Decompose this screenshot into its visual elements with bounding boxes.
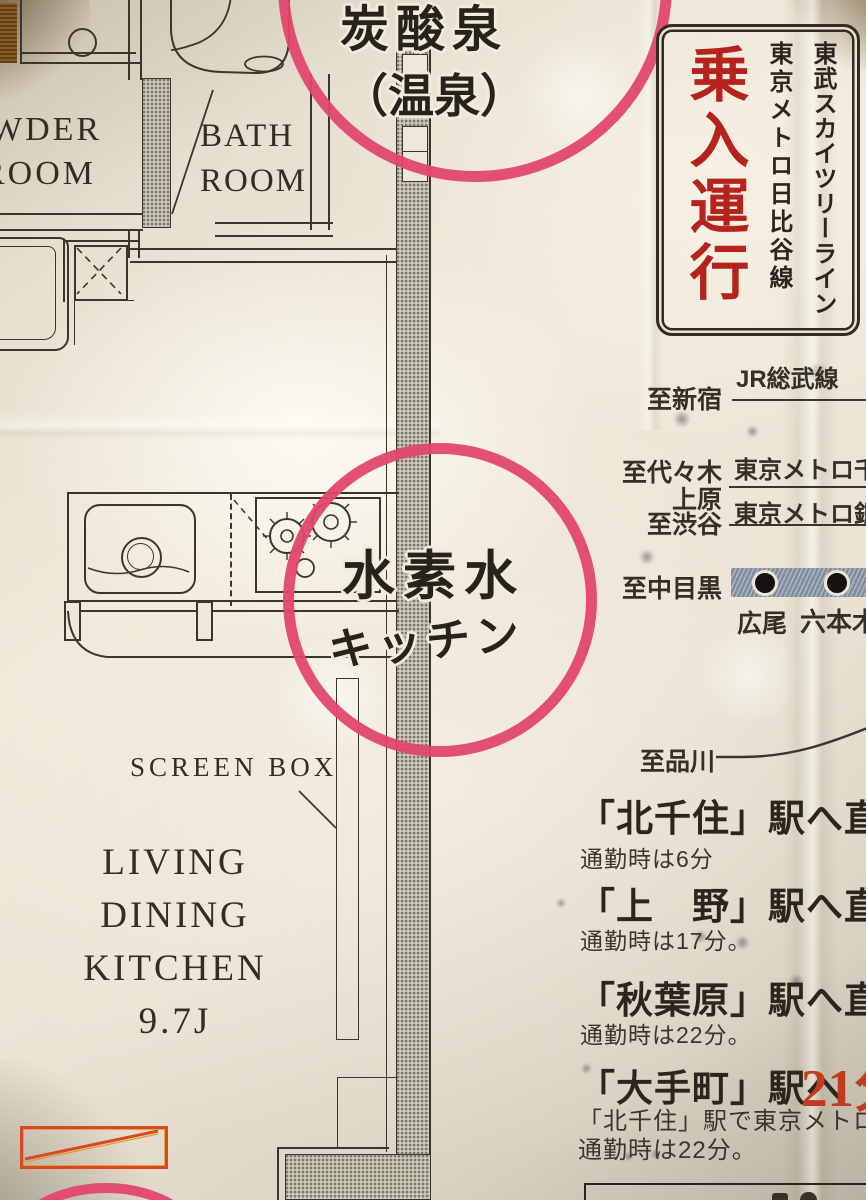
orange-counter-symbol bbox=[20, 1126, 168, 1169]
badge-title: 乗入運行 bbox=[671, 43, 758, 321]
spring-label-line2: （温泉） bbox=[342, 60, 526, 126]
rail-rule bbox=[729, 486, 866, 488]
rail-rule bbox=[732, 399, 866, 401]
powder-room-line2: ROOM bbox=[0, 152, 102, 196]
paper-stain bbox=[556, 898, 566, 908]
screen-box-label: SCREEN BOX bbox=[130, 752, 337, 783]
wall-line bbox=[0, 213, 143, 231]
spring-label-line1: 炭酸泉 bbox=[340, 0, 508, 61]
access-note-akihabara: 通勤時は22分。 bbox=[580, 1016, 752, 1050]
station-dot-hiroo bbox=[752, 570, 778, 596]
bath-room-label: BATH ROOM bbox=[200, 114, 307, 204]
through-service-badge: 東武スカイツリーライン 東京メトロ日比谷線 乗入運行 bbox=[656, 24, 860, 336]
counter-foot bbox=[196, 601, 213, 641]
ldk-line3: KITCHEN bbox=[25, 942, 325, 995]
corridor-line bbox=[337, 1077, 338, 1149]
wrinkle-highlight bbox=[690, 630, 810, 720]
access-note-otemachi-2: 通勤時は22分。 bbox=[578, 1130, 757, 1165]
clipped-glyph-mark bbox=[800, 1192, 817, 1200]
wall-line bbox=[215, 222, 333, 237]
access-note-ueno: 通勤時は17分。 bbox=[580, 922, 752, 956]
fridge-space-dashed bbox=[230, 494, 232, 606]
jr-sobu-line-label: JR総武線 bbox=[736, 359, 839, 394]
wall-step-line bbox=[277, 1147, 279, 1200]
bottom-wall-hatch bbox=[285, 1154, 431, 1200]
powder-room-label: WDER ROOM bbox=[0, 108, 102, 196]
washbasin-circle bbox=[68, 28, 97, 57]
screen-box-leader bbox=[299, 791, 336, 828]
dest-nakameguro: 至中目黒 bbox=[612, 569, 722, 605]
bathtub-ledge bbox=[245, 57, 283, 72]
interior-wall-hatch bbox=[142, 78, 171, 228]
flyer-photo: WDER ROOM BATH ROOM SCREEN BOX LIVING DI… bbox=[0, 0, 866, 1200]
dest-shinagawa: 至品川 bbox=[630, 742, 715, 778]
station-label-roppongi: 六本木 bbox=[800, 602, 866, 639]
entry-counter-inner bbox=[0, 246, 56, 340]
crease-horizontal bbox=[0, 412, 440, 440]
wall-line bbox=[128, 0, 142, 80]
ldk-line2: DINING bbox=[25, 889, 325, 942]
paper-stain bbox=[746, 425, 759, 438]
wall-step-line bbox=[277, 1147, 389, 1149]
chiyoda-line-label: 東京メトロ千代田線 bbox=[734, 450, 866, 485]
clipped-glyph-mark bbox=[772, 1193, 788, 1200]
alcove-line bbox=[74, 300, 75, 345]
station-dot-roppongi bbox=[824, 570, 850, 596]
sink-drain-inner bbox=[127, 543, 154, 570]
access-note-kitasenju: 通勤時は6分 bbox=[580, 840, 714, 874]
ldk-size: 9.7J bbox=[25, 995, 325, 1048]
counter-foot bbox=[64, 601, 81, 641]
page-gap-amber bbox=[0, 3, 17, 63]
bottom-info-box bbox=[584, 1183, 866, 1200]
powder-room-line1: WDER bbox=[0, 108, 102, 152]
ldk-label: LIVING DINING KITCHEN 9.7J bbox=[25, 836, 325, 1048]
alcove-line bbox=[63, 240, 139, 242]
station-label-hiroo: 広尾 bbox=[737, 604, 787, 640]
corridor-line bbox=[338, 1077, 396, 1078]
badge-line-hibiya: 東京メトロ日比谷線 bbox=[761, 41, 796, 321]
rail-rule bbox=[729, 524, 866, 526]
dest-shibuya: 至渋谷 bbox=[618, 505, 722, 541]
bath-room-line2: ROOM bbox=[200, 159, 307, 204]
washing-machine-box bbox=[74, 245, 128, 301]
wall-line bbox=[130, 248, 398, 263]
paper-stain bbox=[639, 549, 655, 565]
bath-room-line1: BATH bbox=[200, 114, 307, 159]
dest-shinjuku: 至新宿 bbox=[618, 380, 722, 416]
wall-line bbox=[128, 230, 140, 258]
badge-line-tobu: 東武スカイツリーライン bbox=[805, 41, 840, 321]
ldk-line1: LIVING bbox=[25, 836, 325, 889]
access-title-kitasenju: 「北千住」駅へ直通 bbox=[578, 788, 866, 842]
alcove-line bbox=[74, 300, 134, 301]
bathtub-outline bbox=[171, 0, 289, 73]
bathtub-inner-curve bbox=[171, 0, 231, 50]
